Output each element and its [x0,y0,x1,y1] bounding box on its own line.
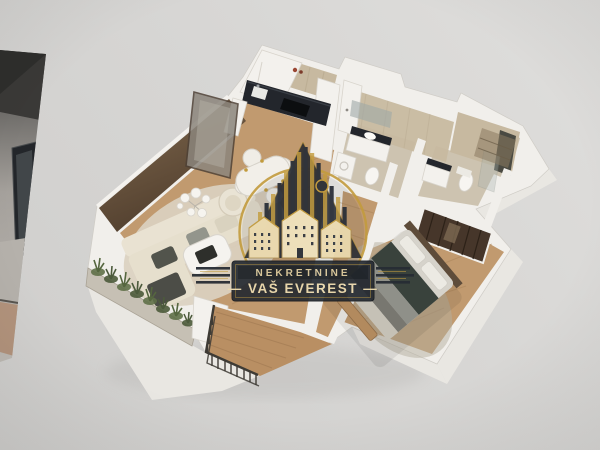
faucet [257,85,260,88]
logo-roof-badge [316,180,328,192]
door-handle [346,109,349,112]
mirror-reflection [194,100,230,168]
floorplan-photo-canvas: NEKRETNINE — VAŠ EVEREST — [0,0,600,450]
jar-decor-2 [299,70,303,74]
armchair-seat [225,195,241,211]
jar-decor [293,68,297,72]
logo-text-line2: — VAŠ EVEREST — [228,281,379,296]
logo-text-line1: NEKRETNINE [255,268,350,279]
house-door [297,248,303,258]
banner-wings-left [192,267,230,284]
table-leg [244,168,248,172]
table-leg [260,159,264,163]
photo-of-floorplan: NEKRETNINE — VAŠ EVEREST — [0,0,600,450]
banner-wings-right [376,267,414,284]
